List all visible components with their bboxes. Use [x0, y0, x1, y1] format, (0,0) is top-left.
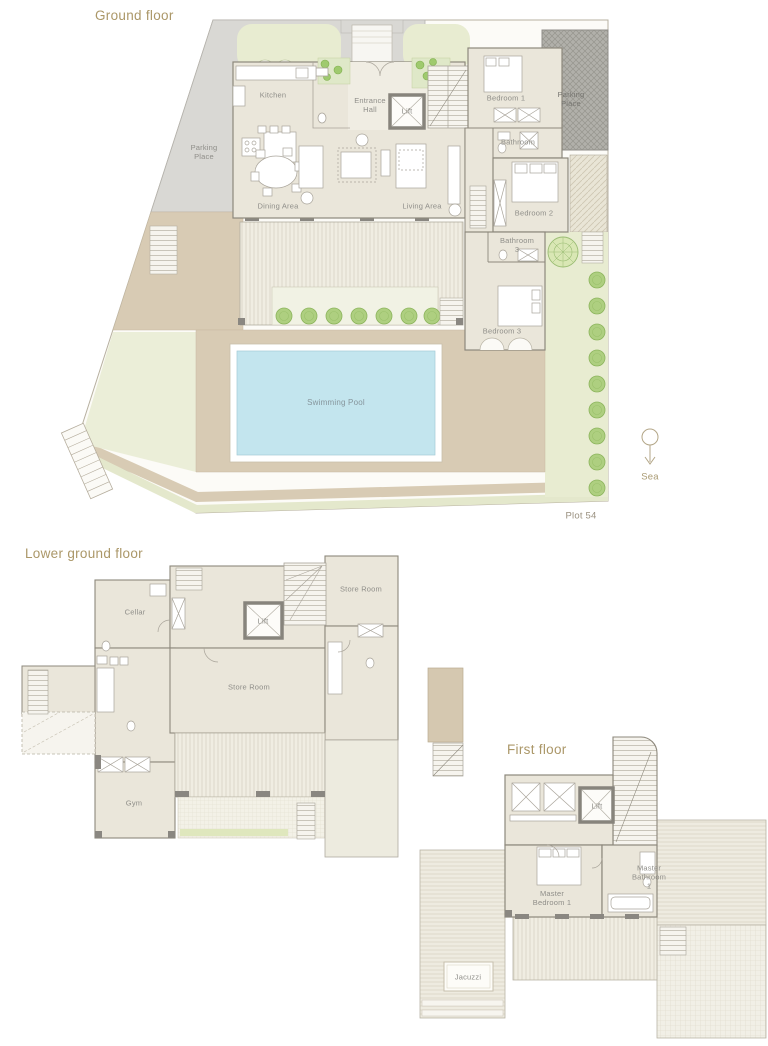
- dining-area-label: Dining Area: [258, 202, 299, 211]
- jacuzzi-label: Jacuzzi: [455, 973, 481, 982]
- bush-row-vertical: [589, 272, 605, 496]
- west-terrace: [420, 850, 505, 1018]
- terrace-pad: [428, 668, 463, 742]
- store-room-upper-label: Store Room: [340, 585, 382, 594]
- garden-stairs: [582, 232, 603, 263]
- south-terrace: [513, 917, 657, 980]
- master-bathroom1-label: Master Bathroom 1: [629, 864, 669, 891]
- lower-deck: [175, 733, 325, 797]
- lower-ground-floor-title: Lower ground floor: [25, 546, 143, 561]
- sea-direction-indicator: [642, 429, 658, 464]
- terrace-step: [422, 1010, 503, 1016]
- bedroom1-label: Bedroom 1: [487, 94, 526, 103]
- first-floor-plan: [420, 737, 766, 1038]
- master-bed: [537, 847, 581, 885]
- gym-label: Gym: [126, 799, 142, 808]
- outdoor-stairs: [433, 743, 463, 776]
- ground-floor-title: Ground floor: [95, 8, 174, 23]
- west-terrace-stairs: [150, 226, 177, 274]
- first-floor-title: First floor: [507, 742, 567, 757]
- lift-label: Lift: [402, 107, 413, 116]
- entrance-hall-label: Entrance Hall: [347, 96, 393, 114]
- swimming-pool-label: Swimming Pool: [307, 398, 365, 408]
- bedroom2-label: Bedroom 2: [515, 209, 554, 218]
- lower-ground-floor-plan: [22, 556, 463, 857]
- store-room-main-label: Store Room: [228, 683, 270, 692]
- bathroom-label: Bathroom: [501, 138, 535, 147]
- floor-plans-page: Ground floor Lower ground floor First fl…: [0, 0, 768, 1046]
- west-terrace: [113, 212, 243, 330]
- kitchen-label: Kitchen: [260, 91, 286, 100]
- lower-lift-label: Lift: [258, 617, 269, 626]
- side-patio: [325, 740, 398, 857]
- main-staircase: [428, 66, 468, 128]
- east-terrace: [657, 820, 766, 925]
- master-bedroom1-label: Master Bedroom 1: [527, 889, 577, 907]
- bathroom3-label: Bathroom 3: [497, 236, 537, 254]
- patio-stairs: [297, 803, 315, 839]
- unexcavated-area: [22, 712, 95, 754]
- planting-strip: [180, 829, 288, 836]
- annex-stairs: [28, 670, 48, 714]
- parking-place-left-label: Parking Place: [185, 143, 223, 161]
- sea-label: Sea: [641, 471, 659, 482]
- parking-place-right-label: Parking Place: [552, 90, 590, 108]
- cellar-label: Cellar: [125, 608, 146, 617]
- entry-stairs: [176, 568, 202, 590]
- plot-number-label: Plot 54: [566, 510, 597, 521]
- corridor-stairs: [470, 186, 486, 228]
- terrace-step: [422, 1000, 503, 1006]
- stair-tower: [613, 737, 657, 845]
- terrace-stairs: [660, 927, 686, 955]
- entry-steps: [352, 25, 392, 63]
- tree: [548, 237, 578, 267]
- first-lift-label: Lift: [592, 802, 603, 811]
- side-terrace-hatched: [570, 155, 607, 232]
- living-area-label: Living Area: [402, 202, 441, 211]
- fan-staircase: [284, 563, 326, 625]
- bedroom3-label: Bedroom 3: [483, 327, 522, 336]
